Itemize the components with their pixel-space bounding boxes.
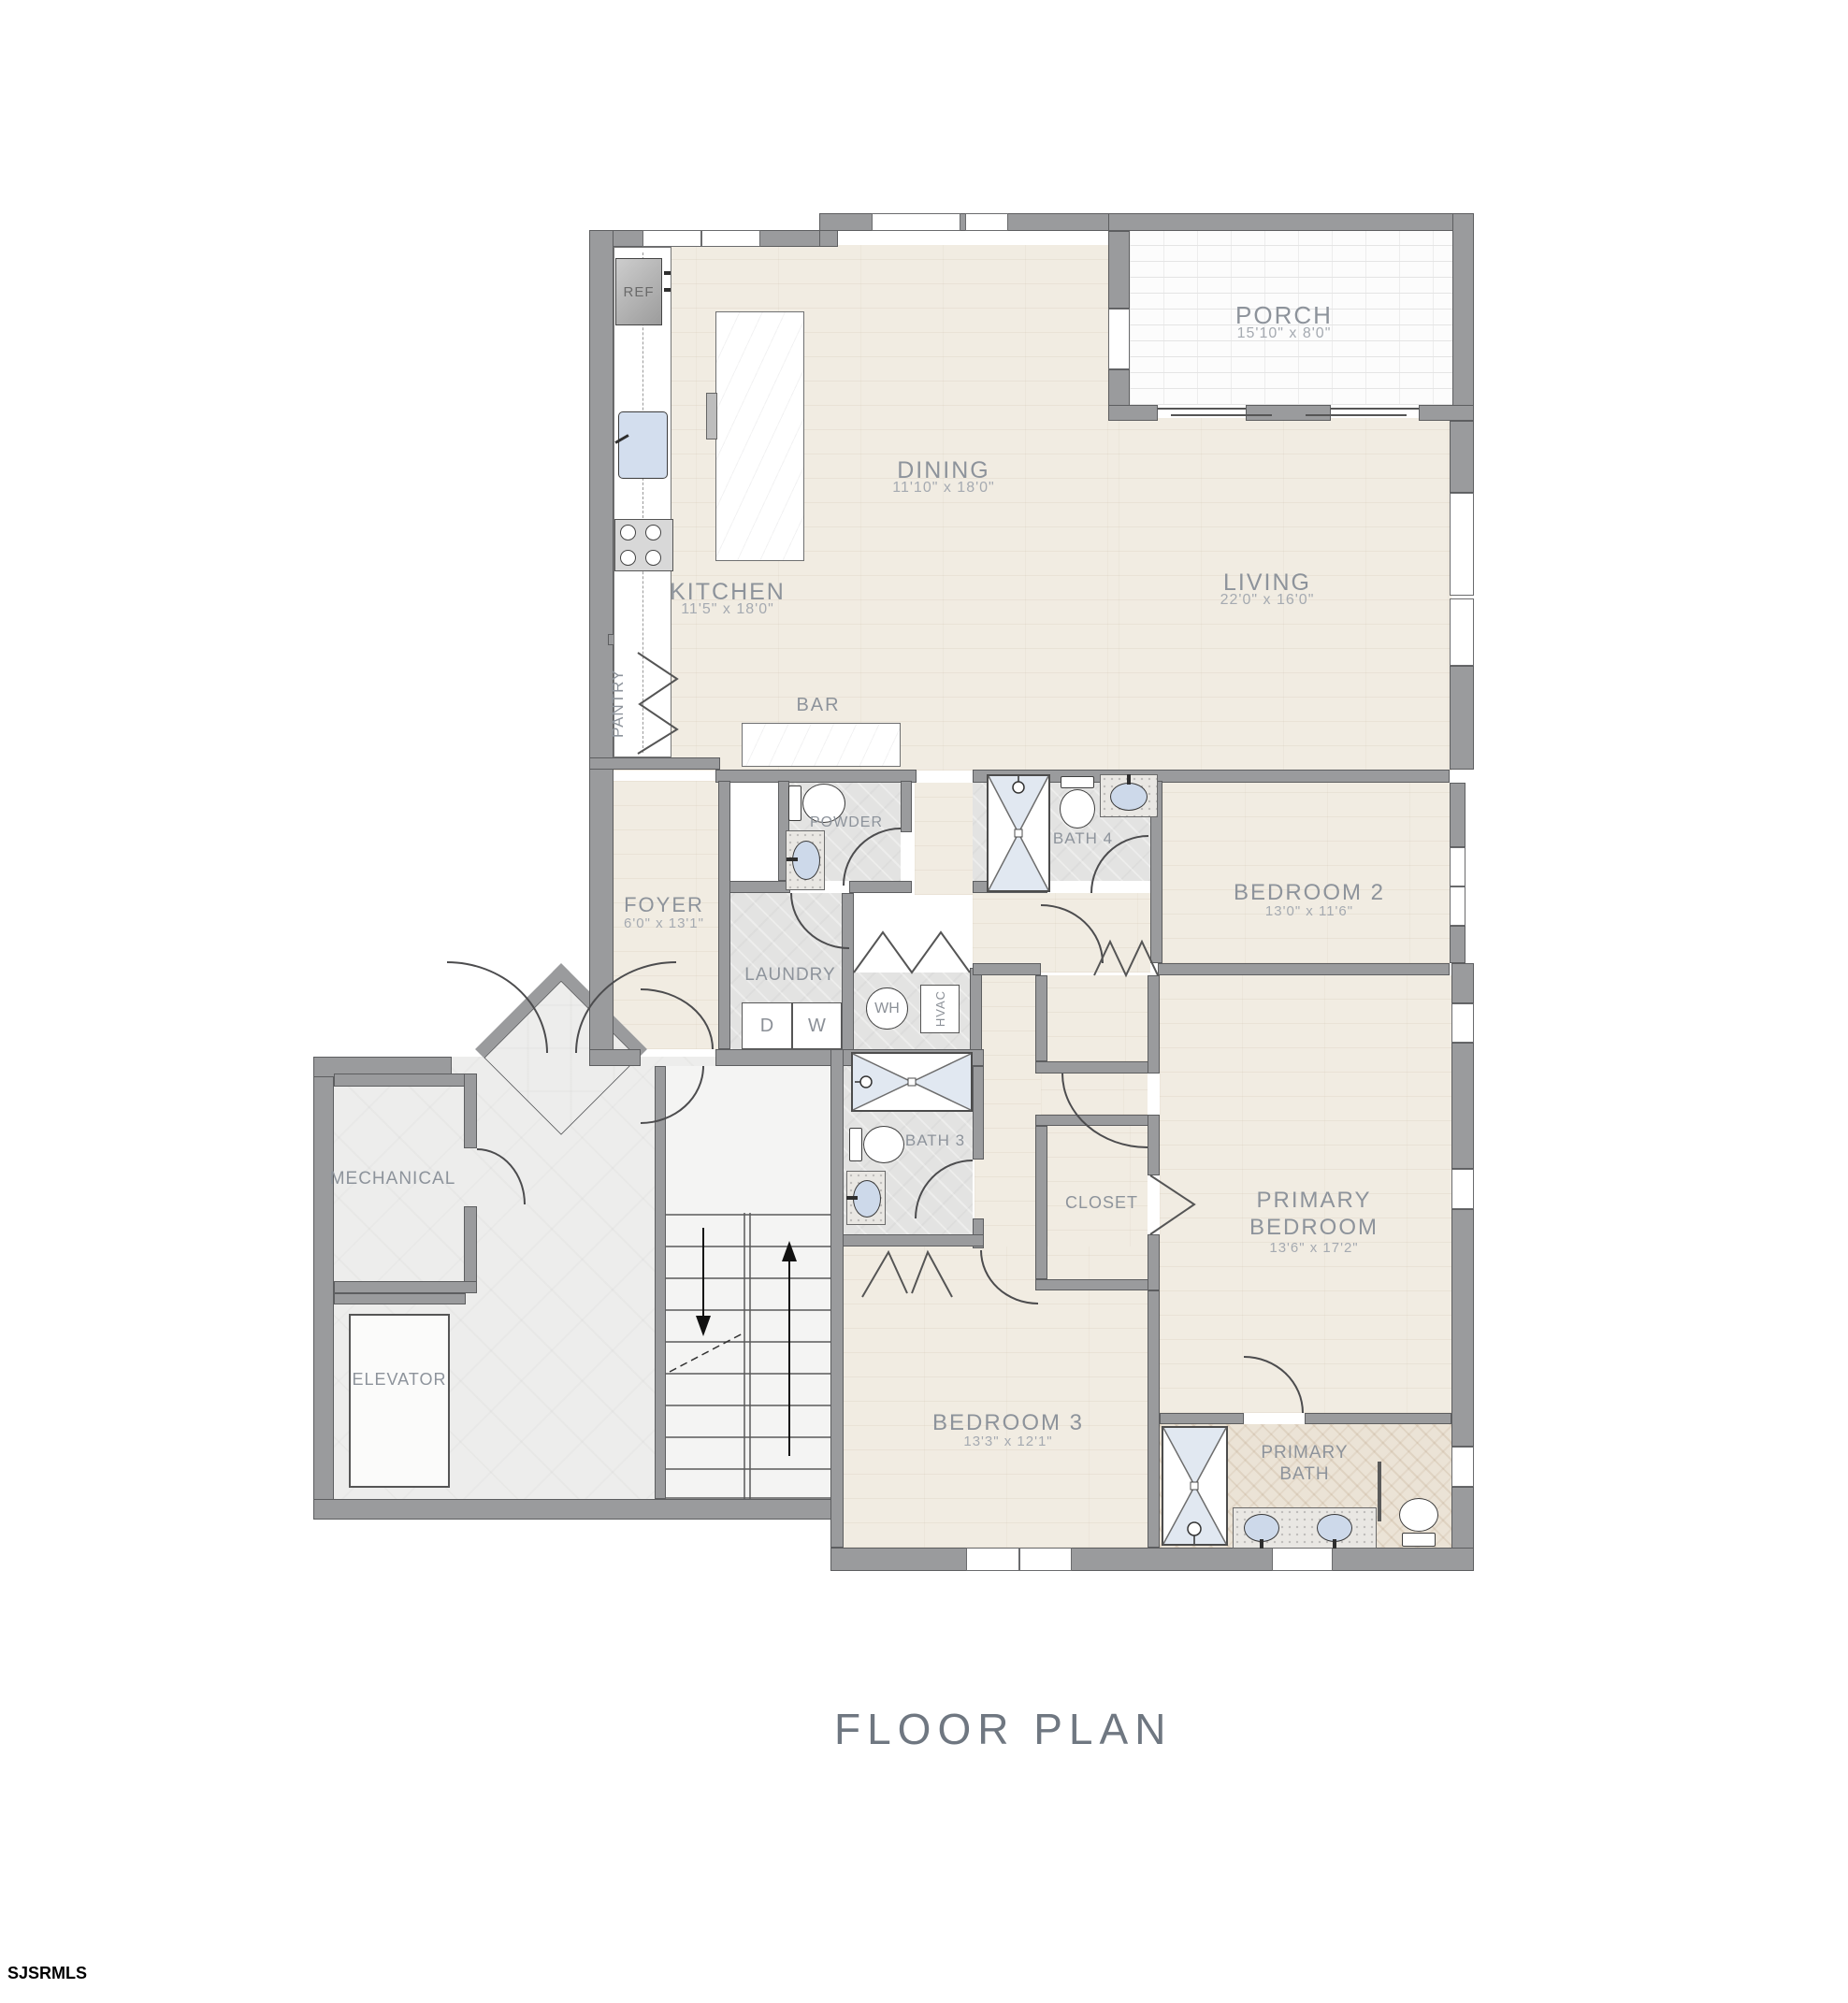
wall: [901, 781, 912, 832]
wall: [1158, 963, 1450, 975]
primary-bedroom-dims: 13'6" x 17'2": [1220, 1240, 1408, 1256]
bedroom3-closet-doors: [860, 1248, 954, 1300]
elevator-cab: [349, 1314, 450, 1488]
stove-burner: [645, 550, 661, 566]
bath4-faucet: [1127, 774, 1131, 785]
powder-faucet: [787, 857, 798, 861]
refrigerator: REF: [615, 258, 662, 325]
window: [1450, 598, 1474, 666]
kitchen-dining-floor: [614, 245, 1119, 771]
wall: [1108, 213, 1474, 231]
wall: [1246, 405, 1331, 421]
wall: [1452, 213, 1474, 421]
wall: [334, 1293, 466, 1304]
window: [1450, 886, 1465, 926]
bedroom2-floor: [1162, 783, 1450, 963]
wall: [1450, 666, 1474, 770]
primary-bath-label: PRIMARY BATH: [1244, 1443, 1365, 1486]
porch-dims: 15'10" x 8'0": [1209, 325, 1359, 342]
hvac-label: HVAC: [933, 990, 947, 1027]
primary-shower: [1162, 1426, 1228, 1546]
wall: [1035, 975, 1047, 1061]
ref-handle: [664, 271, 671, 275]
window: [1451, 1003, 1474, 1043]
primary-faucet: [1333, 1539, 1336, 1549]
primary-sink: [1317, 1514, 1352, 1542]
foyer-dims: 6'0" x 13'1": [599, 915, 729, 931]
stove-burner: [645, 525, 661, 540]
refrigerator-label: REF: [624, 284, 655, 300]
window: [965, 213, 1008, 231]
wall: [842, 1234, 984, 1246]
bar-label: BAR: [762, 694, 874, 716]
bath3-shower: [851, 1052, 973, 1112]
water-heater-label: WH: [874, 1001, 900, 1017]
wall: [1451, 1209, 1474, 1447]
window: [1451, 1169, 1474, 1209]
toilet-bowl: [1060, 789, 1095, 829]
wall: [464, 1074, 477, 1148]
powder-label: POWDER: [800, 814, 893, 831]
floor-plan-canvas: REF D W WH HVAC: [0, 0, 1848, 2003]
wall: [1450, 926, 1465, 963]
wall: [1450, 783, 1465, 847]
wall: [1451, 1043, 1474, 1169]
washer: W: [792, 1002, 842, 1049]
window: [1272, 1548, 1333, 1571]
bedroom2-dims: 13'0" x 11'6": [1230, 903, 1389, 919]
kitchen-sink: [618, 411, 668, 479]
wall: [1148, 975, 1160, 1074]
toilet-tank: [1402, 1533, 1436, 1547]
window: [1108, 309, 1130, 369]
window: [872, 213, 960, 231]
mls-watermark: SJSRMLS: [7, 1964, 87, 1983]
wall: [1108, 405, 1158, 421]
wall: [715, 770, 917, 783]
wall: [334, 1074, 477, 1087]
wall: [830, 1049, 844, 1548]
closet-door: [1150, 1175, 1197, 1234]
hall-floor: [975, 973, 1041, 1250]
foyer-label: FOYER: [599, 893, 729, 917]
bath4-sink: [1110, 783, 1148, 811]
wall: [1305, 1413, 1451, 1424]
toilet-tank: [1061, 776, 1094, 788]
toilet-tank: [849, 1128, 862, 1161]
page-title: FLOOR PLAN: [834, 1704, 1172, 1754]
ref-handle: [664, 288, 671, 292]
bedroom3-dims: 13'3" x 12'1": [929, 1434, 1088, 1449]
wall: [1108, 231, 1130, 309]
window: [966, 1548, 1019, 1571]
washer-label: W: [808, 1016, 826, 1037]
bath3-faucet: [846, 1196, 858, 1200]
window: [701, 230, 760, 247]
stove-burner: [620, 525, 636, 540]
dryer-label: D: [760, 1016, 773, 1037]
sliding-door: [1158, 408, 1246, 410]
laundry-label: LAUNDRY: [729, 965, 851, 987]
closet-label: CLOSET: [1050, 1193, 1153, 1214]
wall: [313, 1057, 334, 1520]
sliding-door: [1331, 408, 1419, 410]
wall: [830, 1548, 1474, 1571]
primary-sink: [1244, 1514, 1279, 1542]
wall: [1419, 405, 1474, 421]
linen-bifold-door: [1094, 940, 1158, 975]
bath4-label: BATH 4: [1041, 829, 1125, 848]
wall: [1148, 1115, 1160, 1175]
window: [1019, 1548, 1072, 1571]
primary-faucet: [1260, 1539, 1263, 1549]
hall-floor: [915, 783, 973, 895]
kitchen-dims: 11'5" x 18'0": [653, 601, 802, 618]
wall: [313, 1499, 844, 1520]
stairs: [666, 1213, 830, 1499]
wall: [1148, 1234, 1160, 1290]
elevator-label: ELEVATOR: [329, 1370, 469, 1391]
wall: [1148, 1290, 1160, 1548]
window: [1451, 1447, 1474, 1487]
wall: [334, 1281, 477, 1293]
wall: [1450, 421, 1474, 493]
wall: [1160, 1413, 1244, 1424]
wall: [973, 963, 1041, 975]
bath3-label: BATH 3: [893, 1131, 977, 1150]
water-heater: WH: [866, 987, 908, 1030]
living-dims: 22'0" x 16'0": [1192, 592, 1342, 609]
pantry-label: PANTRY: [609, 666, 628, 741]
dining-dims: 11'10" x 18'0": [869, 480, 1018, 497]
window: [1450, 493, 1474, 596]
toilet-bowl: [1399, 1498, 1438, 1532]
kitchen-island: [715, 311, 804, 561]
bar-counter: [742, 723, 901, 767]
window: [642, 230, 701, 247]
wall: [1035, 1061, 1160, 1074]
sliding-door: [1171, 414, 1272, 416]
primary-bedroom-label: PRIMARY BEDROOM: [1220, 1188, 1408, 1242]
pantry-bifold-door: [636, 653, 681, 756]
dryer: D: [742, 1002, 792, 1049]
sliding-door: [1306, 414, 1407, 416]
linen-closet-floor: [1043, 975, 1148, 1061]
stove-burner: [620, 550, 636, 566]
wall: [1035, 1279, 1160, 1290]
bath-partition: [1378, 1462, 1381, 1521]
island-sink: [706, 393, 717, 440]
wall: [1451, 963, 1474, 1003]
entry-door-left: [447, 961, 548, 1053]
utility-bifold-door: [854, 930, 970, 973]
wall: [655, 1066, 666, 1499]
mechanical-label: MECHANICAL: [309, 1169, 477, 1190]
hvac-unit: HVAC: [920, 985, 960, 1033]
wall: [589, 757, 720, 770]
window: [1450, 847, 1465, 886]
